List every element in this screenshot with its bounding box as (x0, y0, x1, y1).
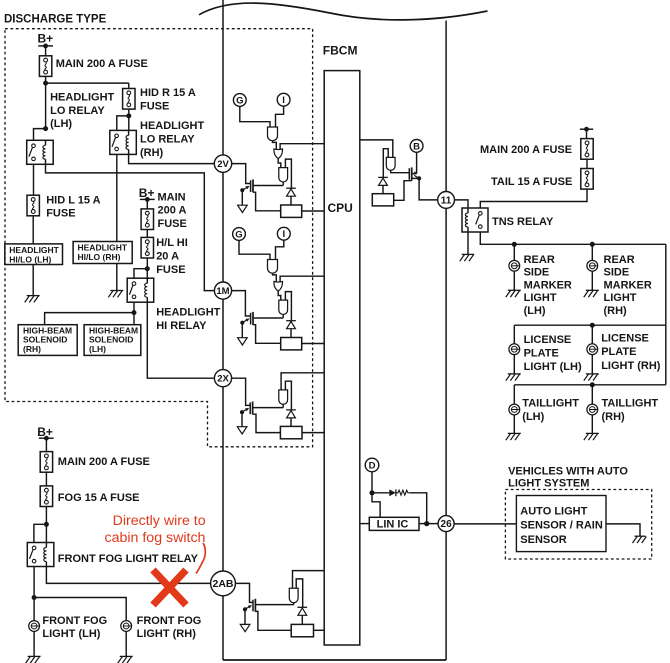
svg-text:HEADLIGHT: HEADLIGHT (50, 92, 114, 104)
svg-text:DISCHARGE TYPE: DISCHARGE TYPE (4, 14, 107, 26)
svg-text:HI/LO (LH): HI/LO (LH) (9, 254, 51, 264)
svg-text:1M: 1M (216, 286, 229, 297)
svg-text:MAIN 200 A FUSE: MAIN 200 A FUSE (56, 58, 148, 70)
svg-text:(LH): (LH) (50, 118, 72, 130)
svg-text:(LH): (LH) (89, 344, 106, 354)
svg-text:LIGHT SYSTEM: LIGHT SYSTEM (508, 478, 589, 490)
svg-text:MAIN: MAIN (158, 192, 186, 204)
svg-text:FUSE: FUSE (140, 100, 169, 112)
svg-text:I: I (282, 229, 285, 240)
svg-text:PLATE: PLATE (601, 346, 636, 358)
svg-text:FUSE: FUSE (156, 264, 185, 276)
svg-text:HI RELAY: HI RELAY (156, 320, 207, 332)
svg-text:H/L HI: H/L HI (156, 237, 188, 249)
svg-text:PLATE: PLATE (524, 348, 559, 360)
svg-text:I: I (282, 95, 285, 106)
svg-text:TNS RELAY: TNS RELAY (492, 216, 554, 228)
svg-text:FBCM: FBCM (323, 43, 358, 57)
svg-text:HI/LO (RH): HI/LO (RH) (78, 252, 121, 262)
svg-text:SENSOR / RAIN: SENSOR / RAIN (520, 520, 603, 532)
svg-text:LIGHT (RH): LIGHT (RH) (137, 628, 197, 640)
svg-text:B+: B+ (38, 31, 54, 45)
svg-text:TAILLIGHT: TAILLIGHT (522, 398, 579, 410)
svg-text:11: 11 (441, 196, 452, 207)
svg-text:2AB: 2AB (212, 578, 233, 590)
svg-text:20 A: 20 A (156, 251, 179, 263)
svg-text:(LH): (LH) (522, 411, 544, 423)
svg-text:26: 26 (441, 519, 453, 530)
svg-text:(RH): (RH) (23, 344, 41, 354)
svg-text:LO RELAY: LO RELAY (50, 105, 105, 117)
svg-text:REAR: REAR (604, 254, 635, 266)
svg-text:(RH): (RH) (602, 411, 626, 423)
svg-text:HEADLIGHT: HEADLIGHT (156, 307, 220, 319)
svg-text:SENSOR: SENSOR (520, 534, 567, 546)
svg-text:LICENSE: LICENSE (524, 334, 572, 346)
svg-text:HID R 15 A: HID R 15 A (140, 87, 196, 99)
svg-text:VEHICLES WITH AUTO: VEHICLES WITH AUTO (508, 466, 628, 478)
svg-text:B: B (413, 141, 420, 152)
svg-text:G: G (235, 229, 242, 240)
svg-text:G: G (236, 95, 243, 106)
svg-text:LO RELAY: LO RELAY (140, 134, 195, 146)
svg-text:AUTO LIGHT: AUTO LIGHT (520, 505, 587, 517)
svg-text:(LH): (LH) (524, 305, 546, 317)
svg-text:MARKER: MARKER (524, 279, 572, 291)
svg-text:TAIL 15 A FUSE: TAIL 15 A FUSE (491, 176, 572, 188)
svg-text:SIDE: SIDE (524, 267, 550, 279)
svg-text:LIGHT (RH): LIGHT (RH) (601, 360, 661, 372)
svg-text:FRONT FOG: FRONT FOG (137, 615, 202, 627)
svg-text:(RH): (RH) (140, 147, 164, 159)
svg-text:FRONT FOG LIGHT RELAY: FRONT FOG LIGHT RELAY (58, 553, 199, 565)
svg-text:LIGHT: LIGHT (524, 292, 557, 304)
svg-text:FOG 15 A FUSE: FOG 15 A FUSE (58, 492, 140, 504)
svg-text:200 A: 200 A (158, 205, 187, 217)
svg-text:LIGHT (LH): LIGHT (LH) (524, 361, 582, 373)
svg-text:FUSE: FUSE (46, 208, 75, 220)
svg-text:Directly wire to: Directly wire to (113, 513, 206, 529)
svg-text:LIN IC: LIN IC (377, 519, 409, 531)
svg-text:HEADLIGHT: HEADLIGHT (140, 120, 204, 132)
svg-text:FUSE: FUSE (158, 218, 187, 230)
svg-text:LICENSE: LICENSE (601, 332, 649, 344)
svg-text:2V: 2V (217, 159, 229, 170)
svg-text:(RH): (RH) (604, 305, 628, 317)
svg-text:HID L 15 A: HID L 15 A (46, 194, 100, 206)
svg-text:FRONT FOG: FRONT FOG (42, 615, 107, 627)
svg-text:cabin fog switch: cabin fog switch (105, 530, 206, 546)
svg-text:SIDE: SIDE (604, 267, 630, 279)
svg-text:D: D (369, 460, 376, 471)
svg-text:REAR: REAR (524, 254, 555, 266)
svg-text:CPU: CPU (328, 201, 353, 215)
svg-text:MARKER: MARKER (604, 279, 652, 291)
svg-text:MAIN 200 A FUSE: MAIN 200 A FUSE (480, 144, 572, 156)
svg-text:LIGHT (LH): LIGHT (LH) (42, 628, 100, 640)
svg-text:LIGHT: LIGHT (604, 292, 637, 304)
svg-text:MAIN 200 A FUSE: MAIN 200 A FUSE (58, 456, 150, 468)
svg-text:2X: 2X (217, 374, 229, 385)
svg-text:TAILLIGHT: TAILLIGHT (602, 398, 659, 410)
